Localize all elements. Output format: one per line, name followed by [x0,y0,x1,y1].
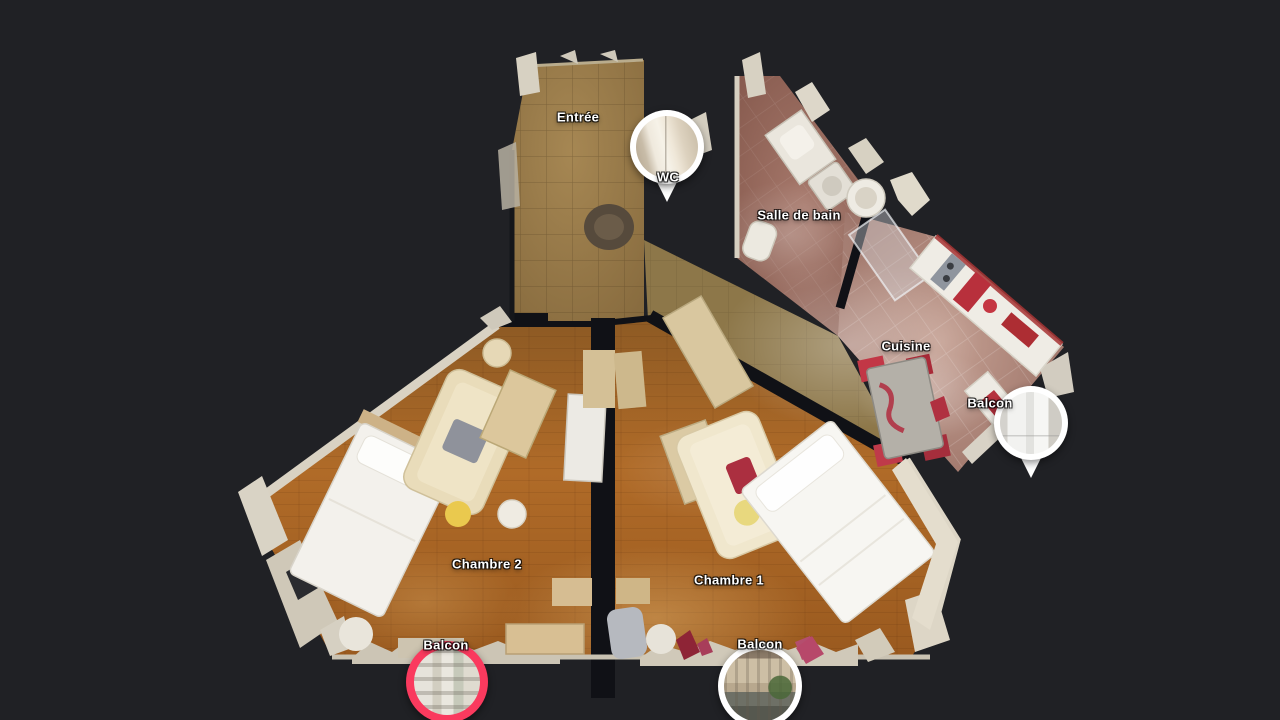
room-entree-floor[interactable] [512,60,644,322]
room-label-chambre-1: Chambre 1 [694,574,764,587]
pin-photo-balcon-chambre-2 [414,649,480,715]
pin-photo-balcon-chambre-1 [724,650,796,720]
dollhouse-floorplan-view[interactable]: Entrée WC Salle de bain Cuisine Balcon C… [0,0,1280,720]
room-label-chambre-2: Chambre 2 [452,558,522,571]
room-label-balcon-chambre-2: Balcon [423,639,468,652]
room-label-cuisine: Cuisine [881,340,930,353]
room-label-salle-de-bain: Salle de bain [757,209,840,222]
floorplan-canvas[interactable] [0,0,1280,720]
room-label-entree: Entrée [557,111,599,124]
room-label-wc: WC [657,171,679,184]
doormat [584,204,634,250]
pin-ring [718,644,802,720]
room-label-balcon-cuisine: Balcon [967,397,1012,410]
pin-ring [406,641,488,720]
room-label-balcon-chambre-1: Balcon [737,638,782,651]
